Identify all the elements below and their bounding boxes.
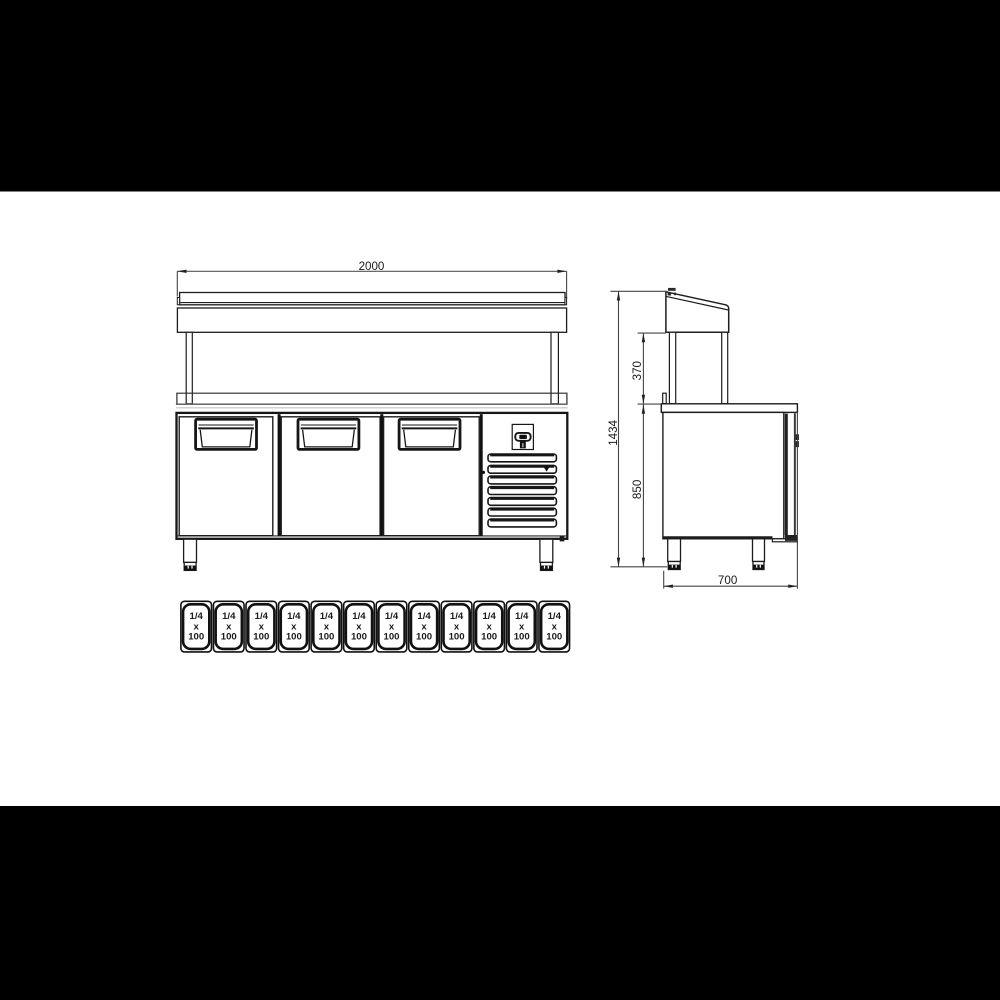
svg-text:1434: 1434: [607, 419, 620, 445]
svg-text:100: 100: [546, 632, 562, 643]
svg-text:100: 100: [351, 632, 367, 643]
svg-text:700: 700: [718, 574, 737, 587]
svg-text:100: 100: [221, 632, 237, 643]
svg-text:100: 100: [416, 632, 432, 643]
svg-text:100: 100: [253, 632, 269, 643]
svg-text:2000: 2000: [359, 260, 385, 273]
svg-text:370: 370: [631, 361, 644, 380]
svg-text:100: 100: [318, 632, 334, 643]
svg-text:100: 100: [188, 632, 204, 643]
svg-text:850: 850: [631, 480, 644, 499]
svg-text:100: 100: [481, 632, 497, 643]
svg-text:100: 100: [383, 632, 399, 643]
svg-text:100: 100: [286, 632, 302, 643]
svg-text:100: 100: [449, 632, 465, 643]
svg-text:100: 100: [514, 632, 530, 643]
